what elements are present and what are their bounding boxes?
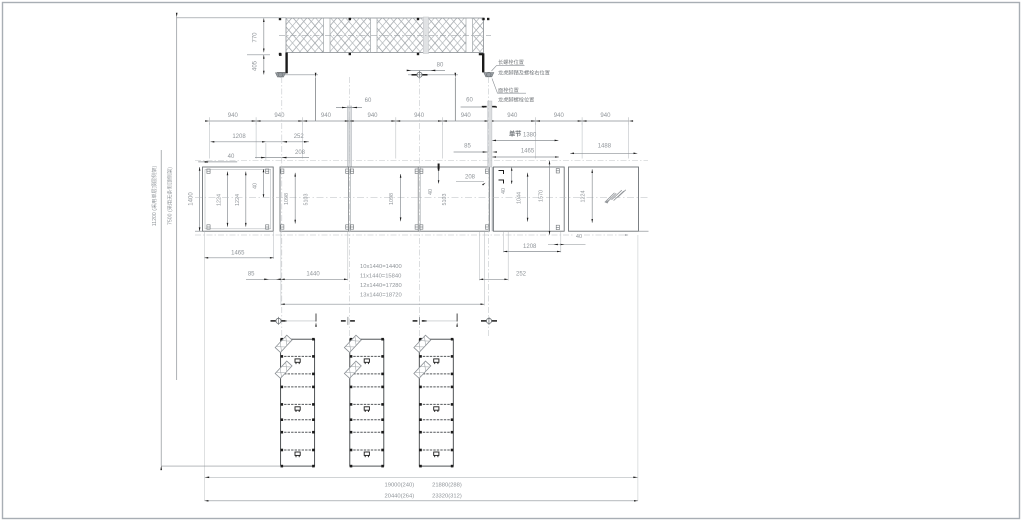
svg-text:12x1440=17280: 12x1440=17280 [360, 283, 402, 289]
svg-text:19000(240): 19000(240) [385, 483, 415, 489]
svg-text:40: 40 [228, 154, 235, 160]
svg-text:405: 405 [253, 60, 259, 71]
svg-text:7500 (采用无条侧顶侧架): 7500 (采用无条侧顶侧架) [166, 167, 174, 225]
svg-text:40: 40 [253, 183, 259, 189]
svg-text:85: 85 [248, 271, 255, 277]
svg-text:1440: 1440 [306, 271, 320, 277]
svg-text:1465: 1465 [231, 250, 245, 256]
svg-text:5103: 5103 [304, 194, 310, 206]
svg-text:1224: 1224 [217, 194, 223, 206]
svg-text:940: 940 [554, 113, 565, 119]
svg-text:1098: 1098 [389, 193, 395, 205]
svg-text:940: 940 [321, 113, 332, 119]
svg-text:21880(288): 21880(288) [432, 483, 462, 489]
svg-text:面栓位置: 面栓位置 [498, 86, 519, 94]
svg-text:5103: 5103 [442, 194, 448, 206]
svg-text:11x1440=15840: 11x1440=15840 [360, 274, 401, 280]
svg-text:1208: 1208 [232, 134, 246, 140]
svg-text:1570: 1570 [538, 190, 544, 202]
svg-text:940: 940 [367, 113, 378, 119]
svg-text:20440(264): 20440(264) [385, 494, 415, 500]
svg-text:80: 80 [437, 63, 444, 69]
svg-text:208: 208 [295, 150, 306, 156]
svg-text:1224: 1224 [580, 191, 586, 203]
svg-text:252: 252 [516, 271, 527, 277]
svg-text:长螺栓位置: 长螺栓位置 [498, 58, 524, 66]
svg-text:40: 40 [576, 234, 582, 240]
svg-text:23320(312): 23320(312) [432, 494, 462, 500]
svg-text:770: 770 [253, 32, 259, 43]
svg-text:40: 40 [501, 188, 507, 194]
svg-text:龙虎脚踏及螺栓右位置: 龙虎脚踏及螺栓右位置 [498, 68, 550, 76]
svg-text:1098: 1098 [284, 193, 290, 205]
svg-text:60: 60 [466, 98, 473, 104]
svg-text:1224: 1224 [235, 194, 241, 206]
svg-text:1488: 1488 [598, 144, 612, 150]
svg-text:1044: 1044 [516, 192, 522, 204]
svg-text:1465: 1465 [521, 148, 535, 154]
svg-text:1208: 1208 [523, 244, 537, 250]
svg-text:940: 940 [507, 113, 518, 119]
svg-text:940: 940 [274, 113, 285, 119]
svg-text:940: 940 [600, 113, 611, 119]
svg-text:13x1440=18720: 13x1440=18720 [360, 293, 402, 299]
svg-text:1380: 1380 [523, 133, 537, 139]
svg-text:11200 (采用单层顶层侧架): 11200 (采用单层顶层侧架) [150, 166, 158, 227]
svg-text:龙虎脚螺栓位置: 龙虎脚螺栓位置 [498, 96, 534, 104]
svg-text:85: 85 [464, 144, 471, 150]
svg-text:单节: 单节 [509, 130, 521, 138]
svg-text:940: 940 [228, 113, 239, 119]
svg-text:940: 940 [461, 113, 472, 119]
svg-text:60: 60 [365, 98, 372, 104]
svg-text:40: 40 [428, 189, 434, 195]
svg-text:1400: 1400 [189, 192, 195, 206]
svg-text:208: 208 [465, 175, 476, 181]
svg-text:252: 252 [294, 134, 305, 140]
svg-text:10x1440=14400: 10x1440=14400 [360, 264, 402, 270]
